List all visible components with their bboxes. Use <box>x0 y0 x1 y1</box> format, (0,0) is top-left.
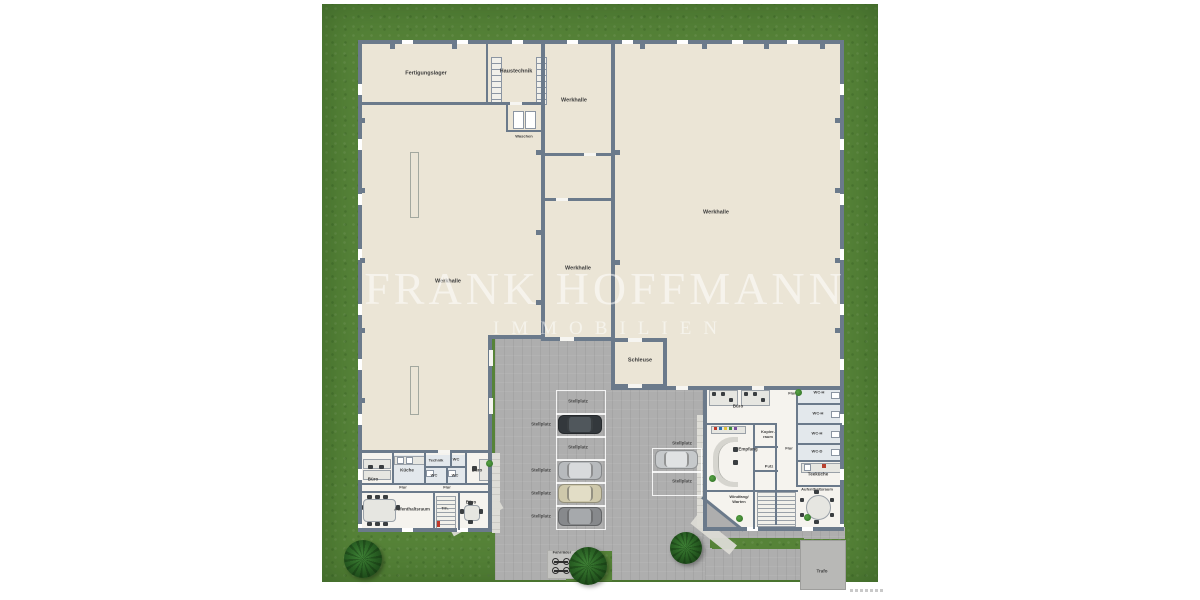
chair <box>830 513 834 517</box>
wall-pilaster <box>536 150 541 155</box>
chair <box>800 498 804 502</box>
door-opening <box>628 338 642 342</box>
car-roof <box>567 463 593 478</box>
chair <box>383 495 388 499</box>
wc-fixture <box>831 449 840 456</box>
chair <box>830 498 834 502</box>
wall-segment <box>705 490 798 492</box>
wall-segment <box>465 453 467 485</box>
wall-segment <box>798 443 842 445</box>
wall-segment <box>458 493 460 530</box>
chair <box>733 460 738 465</box>
wall-segment <box>506 104 508 132</box>
wall-pilaster <box>452 44 457 49</box>
plant <box>804 514 811 521</box>
chair <box>479 509 483 514</box>
wall-segment <box>798 423 842 425</box>
wc-fixture <box>831 411 840 418</box>
wall-pilaster <box>390 44 395 49</box>
stove <box>406 457 413 464</box>
hall-floor-right <box>611 42 842 388</box>
wall-segment <box>450 453 452 468</box>
crane-rail <box>410 366 419 415</box>
wall-segment <box>360 491 490 493</box>
door-opening <box>676 386 688 390</box>
wall-pilaster <box>764 44 769 49</box>
wash-stall <box>525 111 536 129</box>
chair <box>367 495 372 499</box>
chair <box>753 392 757 396</box>
chair <box>712 392 716 396</box>
floor-plan-canvas: FertigungslagerHaustechnikWaschenWerkhal… <box>0 0 1200 600</box>
door-opening <box>628 384 642 388</box>
plant <box>795 389 802 396</box>
car <box>655 450 698 469</box>
chair <box>379 465 384 469</box>
chair <box>468 501 473 505</box>
wall-pilaster <box>615 260 620 265</box>
meeting-table <box>464 505 480 521</box>
door-opening <box>556 198 568 201</box>
car-roof <box>567 417 593 432</box>
wall-segment <box>541 40 545 341</box>
chair <box>472 466 477 471</box>
wall-pilaster <box>702 44 707 49</box>
wall-pilaster <box>360 398 365 403</box>
chair <box>814 520 819 524</box>
binder-purple <box>734 427 737 430</box>
storage-rack <box>491 57 502 105</box>
wall-segment <box>543 153 613 156</box>
wc-fixture <box>426 470 434 477</box>
trafo-pad <box>800 540 846 590</box>
conference-table <box>363 499 396 522</box>
wall-segment <box>424 453 426 485</box>
car <box>558 507 602 526</box>
car <box>558 484 602 503</box>
car-roof <box>567 509 593 524</box>
chair <box>814 490 819 494</box>
wall-segment <box>358 40 844 44</box>
chair <box>396 505 400 510</box>
wall-segment <box>798 403 842 405</box>
wall-segment <box>392 453 394 485</box>
chair <box>761 398 765 402</box>
car-roof <box>664 452 689 467</box>
chair <box>460 509 464 514</box>
chair <box>375 522 380 526</box>
car <box>558 461 602 480</box>
door-opening <box>560 337 574 341</box>
chair <box>367 522 372 526</box>
door-opening <box>489 350 493 366</box>
wall-pilaster <box>835 328 840 333</box>
chair <box>721 392 725 396</box>
wall-segment <box>543 198 613 201</box>
sink <box>397 457 404 464</box>
wall-segment <box>663 338 667 388</box>
wall-segment <box>705 423 777 425</box>
wall-pilaster <box>640 44 645 49</box>
wall-pilaster <box>835 258 840 263</box>
schleuse-floor <box>611 338 667 386</box>
wc-floor-left <box>425 455 465 483</box>
tree <box>344 540 382 578</box>
door-opening <box>584 153 596 156</box>
hall-floor-left <box>358 42 543 337</box>
hall-floor-middle <box>543 42 613 341</box>
wall-segment <box>753 446 778 448</box>
chair <box>383 522 388 526</box>
fire-extinguisher <box>437 521 440 527</box>
plant <box>486 460 493 467</box>
sink <box>804 464 811 471</box>
crane-rail <box>410 152 419 218</box>
wall-segment <box>753 423 755 529</box>
binder-blue <box>719 427 722 430</box>
binder-red <box>714 427 717 430</box>
wall-segment <box>703 527 844 531</box>
wall-segment <box>840 40 844 531</box>
wall-segment <box>506 130 543 132</box>
wc-fixture <box>831 431 840 438</box>
parking-spot <box>556 390 606 415</box>
chair <box>468 520 473 524</box>
wash-stall <box>513 111 524 129</box>
wall-pilaster <box>360 188 365 193</box>
car-roof <box>567 486 593 501</box>
wall-pilaster <box>360 118 365 123</box>
wall-segment <box>798 485 842 487</box>
wall-segment <box>798 460 842 462</box>
wall-segment <box>360 483 490 485</box>
chair <box>375 495 380 499</box>
wall-pilaster <box>536 230 541 235</box>
door-opening <box>438 450 450 453</box>
microwave <box>822 464 826 468</box>
wall-segment <box>486 42 488 104</box>
parking-spot <box>652 471 702 496</box>
bicycle-icon <box>552 566 570 574</box>
plant <box>709 475 716 482</box>
chair <box>368 465 373 469</box>
binder-yellow <box>724 427 727 430</box>
stair-rail <box>775 492 777 525</box>
street-paving <box>705 548 805 580</box>
wall-segment <box>488 335 545 339</box>
wall-segment <box>358 528 492 532</box>
wall-segment <box>753 470 778 472</box>
plant <box>736 515 743 522</box>
wall-pilaster <box>835 118 840 123</box>
hall-floor-left-lower <box>358 337 491 453</box>
tree <box>569 547 607 585</box>
entrance-walkway-left <box>492 453 500 533</box>
wall-pilaster <box>360 258 365 263</box>
chair <box>744 392 748 396</box>
binder-green <box>729 427 732 430</box>
tree <box>670 532 702 564</box>
wall-segment <box>358 40 362 532</box>
wall-pilaster <box>820 44 825 49</box>
bicycle-icon <box>552 557 570 565</box>
wall-segment <box>433 493 435 530</box>
wall-segment <box>703 386 707 531</box>
desk <box>363 470 391 480</box>
car <box>558 415 602 434</box>
parking-spot <box>556 436 606 461</box>
fine-print-line <box>850 589 884 592</box>
wall-pilaster <box>615 150 620 155</box>
wc-fixture <box>448 470 456 477</box>
wall-pilaster <box>536 300 541 305</box>
wall-segment <box>541 337 615 341</box>
door-opening <box>752 386 764 390</box>
wc-fixture <box>831 392 840 399</box>
wall-pilaster <box>360 328 365 333</box>
chair <box>733 447 738 452</box>
wall-pilaster <box>835 188 840 193</box>
chair <box>729 398 733 402</box>
door-opening <box>489 398 493 414</box>
wall-segment <box>775 423 777 490</box>
door-opening <box>510 102 522 105</box>
